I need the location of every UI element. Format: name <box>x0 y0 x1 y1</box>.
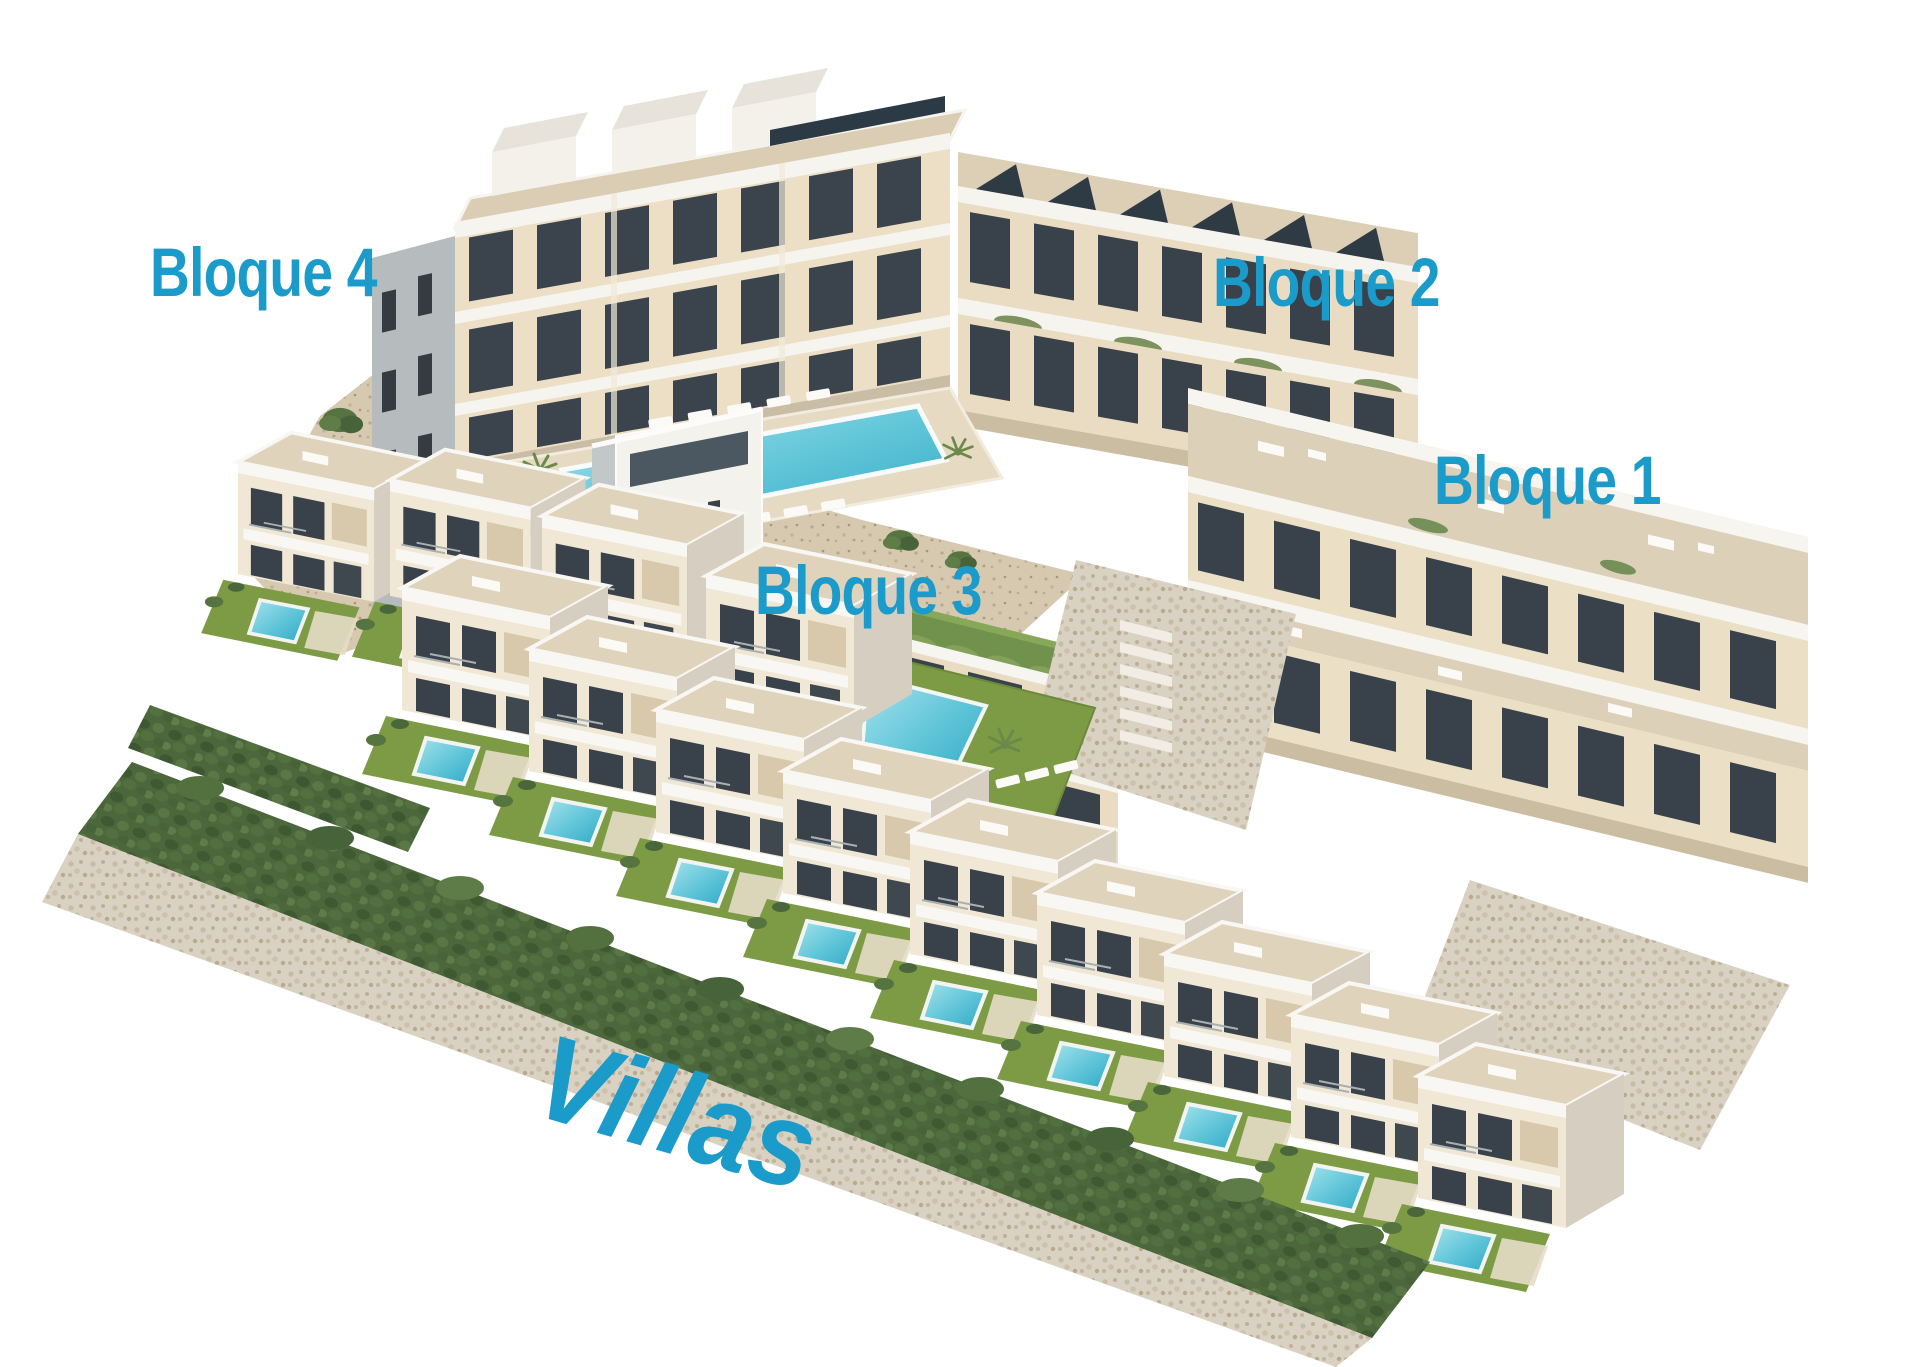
site-render: Bloque 4 Bloque 2 Bloque 1 Bloque 3 Vill… <box>0 0 1920 1367</box>
label-bloque-4: Bloque 4 <box>150 238 377 307</box>
label-bloque-2: Bloque 2 <box>1213 248 1440 317</box>
label-bloque-3: Bloque 3 <box>755 556 982 625</box>
development-illustration <box>0 0 1920 1367</box>
label-bloque-1: Bloque 1 <box>1434 446 1661 515</box>
